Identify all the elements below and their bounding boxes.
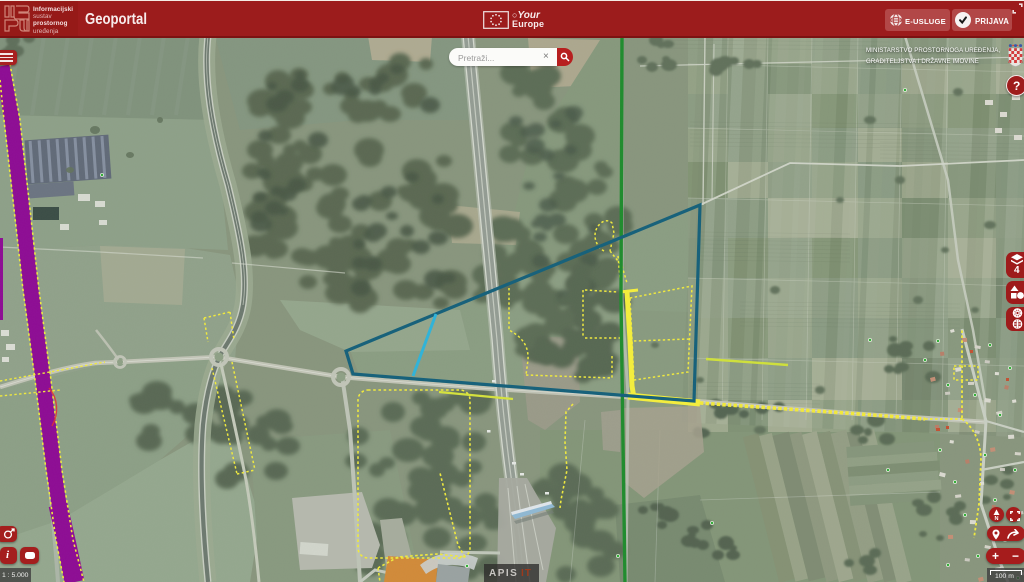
svg-text:N: N [994,516,998,521]
